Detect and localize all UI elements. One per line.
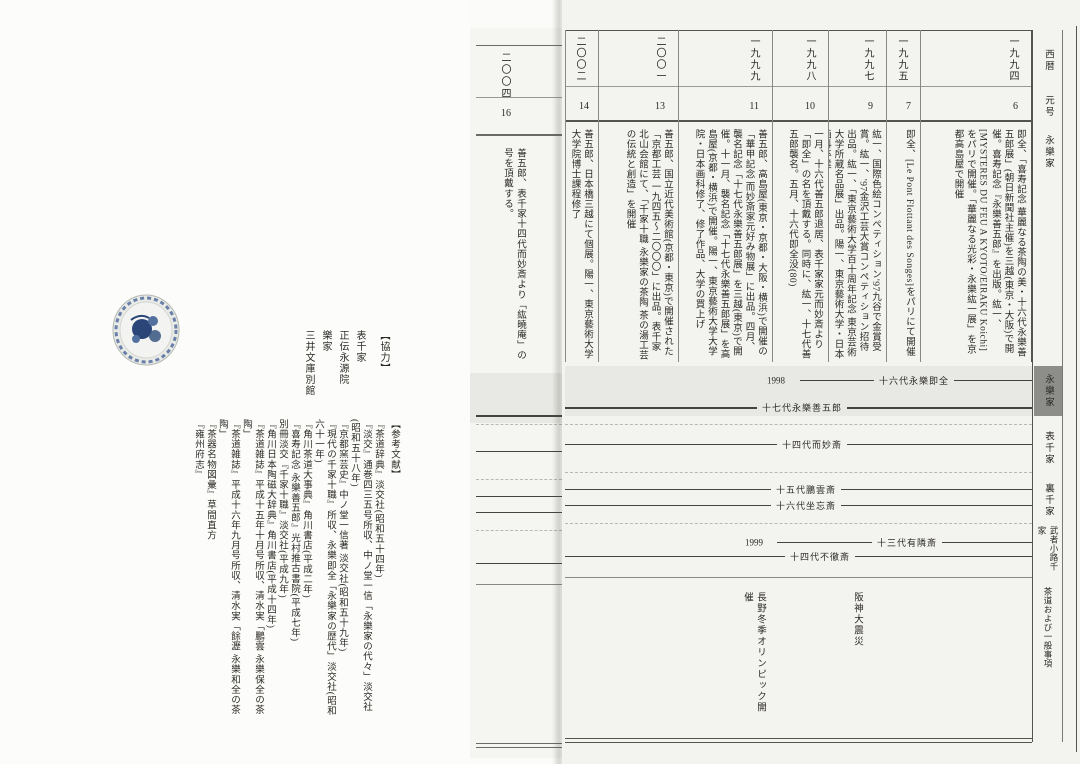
side-tab-omotesenke: 表千家	[1034, 424, 1062, 472]
reference-item: 『茶道雑誌』平成十六年九月号所収、清水実「餘瀝 永樂和全の茶陶」	[216, 419, 240, 717]
side-tab-urasenke: 裏千家	[1034, 476, 1062, 524]
year-column-1999: 一九九九 11 善五郎、高島屋(東京・京都・大阪・横浜)で開催の「華甲記念 而妙…	[678, 30, 772, 362]
reference-item: 『京都窯芸史』中ノ堂一信著 淡交社(昭和五十九年)	[336, 419, 348, 717]
row-header-gengo: 元号	[1034, 88, 1062, 124]
year-label: 一九九八	[802, 36, 817, 82]
band-divider	[565, 577, 1032, 578]
timeline-divider-dashed	[476, 479, 562, 480]
general-event-hanshin: 阪神大震災	[850, 592, 863, 702]
year-label: 二〇〇二	[572, 36, 587, 82]
reference-list: 【参考文献】 『茶道辞典』淡交社(昭和五十四年) 『淡交』通巻四三五号所収、中ノ…	[188, 419, 400, 717]
timeline-label-futessai: 十四代不徹斎	[785, 550, 855, 563]
tab-column-rule	[1032, 30, 1033, 742]
event-text: 紘一、国際色絵コンペティション'97九谷で金賞受賞。紘一、'97金沢工芸大賞コン…	[829, 122, 886, 362]
strip-rule	[476, 97, 562, 98]
era-number: 7	[887, 86, 920, 122]
timeline-line	[476, 415, 562, 417]
reference-item: 『茶道雑誌』平成十五年十月号所収、清水実「鵬雲 永樂保全の茶陶」	[240, 419, 264, 717]
timeline-line	[476, 563, 562, 564]
year-label: 一九九四	[1005, 36, 1020, 82]
chronology-table: 一九九四 6 即全、「喜寿記念 華麗なる茶陶の美・十六代永樂善五郎展」(朝日新聞…	[565, 30, 1032, 362]
ceramic-dish-illustration	[112, 292, 180, 366]
reference-item: 『淡交』通巻四三五号所収、中ノ堂一信「永樂家の代々」淡交社(昭和五十八年)	[348, 419, 372, 717]
table-bottom-rule	[565, 742, 1032, 743]
year-column-1998: 一九九八 10 一月、十六代善五郎退居、表千家家元而妙斎より「即全」の名を頂戴す…	[772, 30, 828, 362]
year-column-2001: 二〇〇一 13 善五郎、国立近代美術館(京都・東京)で開催された「京都工芸 一九…	[598, 30, 678, 362]
general-event-nagano: 長野冬季オリンピック開催	[740, 592, 766, 717]
year-label: 一九九七	[860, 36, 875, 82]
event-text: 善五郎、高島屋(東京・京都・大阪・横浜)で開催の「華甲記念 而妙斎家元好み物展」…	[679, 122, 772, 362]
era-number: 9	[829, 86, 886, 122]
cooperation-item: 表千家	[351, 330, 368, 425]
tab-column-rule	[1062, 30, 1063, 742]
cooperation-item: 三井文庫別館	[300, 330, 317, 425]
event-text: 善五郎、日本橋三越にて個展。陽一、東京藝術大学大学院博士課程修了	[566, 122, 598, 362]
table-bottom-rule	[565, 738, 1032, 739]
reference-item: 『雍州府志』	[192, 419, 204, 717]
side-tab-mushakoji: 武者小路千家	[1034, 526, 1062, 578]
timeline-label-jimyosai: 十四代而妙斎	[777, 438, 847, 451]
timeline-line	[476, 451, 562, 452]
timeline-label-zabosai: 十六代坐忘斎	[771, 499, 841, 512]
era-number: 13	[599, 86, 678, 122]
cooperation-block: 【協力】 表千家 正伝永源院 樂家 三井文庫別館	[296, 330, 392, 425]
strip-era-number: 16	[494, 108, 518, 119]
reference-item: 別冊淡交『千家十職』淡交社(平成九年)	[276, 419, 288, 717]
reference-item: 『茶道辞典』淡交社(昭和五十四年)	[372, 419, 384, 717]
band-divider-dashed	[565, 523, 1032, 524]
reference-item: 『角川茶道大事典』角川書店(平成二年)	[300, 419, 312, 717]
year-label: 二〇〇一	[652, 36, 667, 82]
year-label: 一九九九	[746, 36, 761, 82]
timeline-divider-dashed	[476, 530, 562, 531]
cooperation-heading: 【協力】	[375, 330, 392, 425]
reference-heading: 【参考文献】	[388, 419, 400, 717]
timeline-label-sokuzen: 十六代永樂即全	[874, 374, 954, 387]
underlying-page-strip: 二〇〇四 16 善五郎、表千家十四代而妙斎より「紘曉庵」の号を頂戴する。	[470, 28, 562, 758]
side-tab-general: 茶道および一般事項	[1034, 582, 1062, 672]
reference-item: 『現代の千家十職』所収、永樂即全「永樂家の歴代」淡交社(昭和六十一年)	[312, 419, 336, 717]
cooperation-item: 正伝永源院	[334, 330, 351, 425]
reference-item: 『喜寿記念 永樂善五郎』光村推古書院(平成七年)	[288, 419, 300, 717]
page-right-edge	[1076, 26, 1077, 752]
era-number: 10	[773, 86, 828, 122]
year-column-1994: 一九九四 6 即全、「喜寿記念 華麗なる茶陶の美・十六代永樂善五郎展」(朝日新聞…	[920, 30, 1032, 362]
timeline-line	[476, 512, 562, 513]
strip-event-text: 善五郎、表千家十四代而妙斎より「紘曉庵」の号を頂戴する。	[494, 148, 526, 368]
event-text: 即全、[Le Pont Flottant des Songes]をパリにて開催	[887, 122, 920, 362]
ceramic-dish-photo	[112, 292, 180, 366]
band-divider-dashed	[565, 472, 1032, 473]
side-tab-eiraku: 永樂家	[1034, 366, 1062, 416]
timeline-divider-dashed	[476, 424, 562, 425]
timeline-label-zengoro17: 十七代永樂善五郎	[757, 401, 847, 414]
timeline-end-year: 1998	[764, 376, 788, 386]
event-text: 即全、「喜寿記念 華麗なる茶陶の美・十六代永樂善五郎展」(朝日新聞社主催)を三越…	[921, 122, 1031, 362]
event-text: 一月、十六代善五郎退居、表千家家元而妙斎より「即全」の名を頂戴する。同時に、紘一…	[773, 122, 828, 362]
era-number: 11	[679, 86, 772, 122]
row-header-seireki: 西暦	[1034, 38, 1062, 82]
year-column-1997: 一九九七 9 紘一、国際色絵コンペティション'97九谷で金賞受賞。紘一、'97金…	[828, 30, 886, 362]
cooperation-item: 樂家	[317, 330, 334, 425]
strip-bottom-rule	[476, 747, 562, 748]
band-divider-dashed	[565, 424, 1032, 425]
strip-rule	[476, 45, 562, 46]
year-column-2002: 二〇〇二 14 善五郎、日本橋三越にて個展。陽一、東京藝術大学大学院博士課程修了	[565, 30, 598, 362]
book-spread-scan: 【協力】 表千家 正伝永源院 樂家 三井文庫別館 【参考文献】 『茶道辞典』淡交…	[0, 0, 1080, 764]
row-header-eiraku-family: 永樂家	[1034, 130, 1062, 174]
year-label: 一九九五	[894, 36, 909, 82]
strip-rule	[476, 134, 562, 136]
strip-bottom-rule	[476, 743, 562, 744]
margin-tabs: 西暦 元号 永樂家 永樂家 表千家 裏千家 武者小路千家 茶道および一般事項	[1034, 0, 1062, 764]
reference-item: 『茶器名物図彙』草間直方	[204, 419, 216, 717]
timeline-line	[476, 496, 562, 497]
right-page-chronology: 一九九四 6 即全、「喜寿記念 華麗なる茶陶の美・十六代永樂善五郎展」(朝日新聞…	[562, 0, 1080, 764]
event-text: 善五郎、国立近代美術館(京都・東京)で開催された「京都工芸 一九四五〜二〇〇〇」…	[599, 122, 678, 362]
reference-item: 『角川日本陶磁大辞典』角川書店(平成十四年)	[264, 419, 276, 717]
timeline-label-hounsai: 十五代鵬雲斎	[771, 483, 841, 496]
timeline-divider	[476, 584, 562, 585]
year-column-1995: 一九九五 7 即全、[Le Pont Flottant des Songes]を…	[886, 30, 920, 362]
era-number: 14	[566, 86, 598, 122]
timeline-end-year: 1999	[742, 538, 766, 548]
timeline-label-yurinsai: 十三代有隣斎	[872, 536, 942, 549]
era-number: 6	[921, 86, 1031, 122]
left-page: 【協力】 表千家 正伝永源院 樂家 三井文庫別館 【参考文献】 『茶道辞典』淡交…	[0, 0, 470, 764]
